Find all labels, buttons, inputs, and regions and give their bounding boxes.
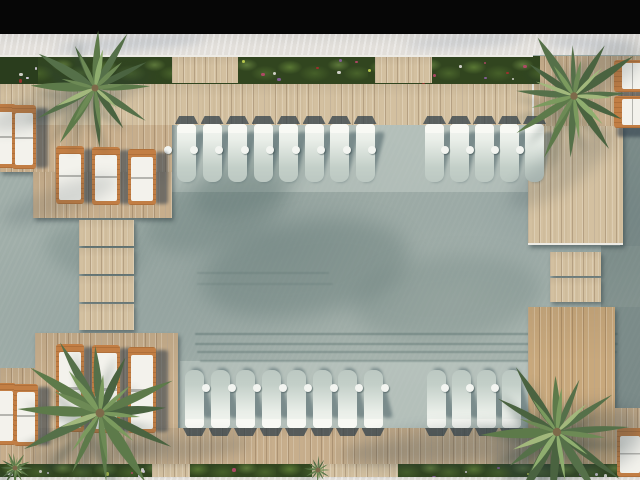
flower-bed-top-flower [339,59,342,62]
sun-lounger-row-bottom-left-lounger-cap [287,419,306,428]
sun-lounger-row-bottom-left-lounger-cap [313,419,332,428]
sun-lounger-row-bottom-right-lounger-cap [427,419,446,428]
sun-lounger-row-bottom-left-lounger-cap [338,419,357,428]
sun-lounger-row-bottom-left-side-table-dot [279,384,287,392]
palm-trunk-center [13,466,18,471]
sun-lounger-row-top-left-lounger-cap [228,124,247,133]
pool-ripple-1 [197,272,329,274]
palm-trunk-center [553,428,561,436]
palm-tree-bottom-right [471,346,640,480]
sun-lounger-row-bottom-left-side-table-dot [228,384,236,392]
flower-bed-top-flower [337,71,340,74]
sun-lounger-row-top-left-side-table-dot [215,146,223,154]
sun-lounger-row-top-left-side-table-dot [190,146,198,154]
sun-lounger-row-bottom-left-lounger-cap [211,419,230,428]
sun-lounger-row-bottom-left-lounger-cap [364,419,383,428]
sun-lounger-row-top-left-lounger-cap [279,124,298,133]
deck-step-left-3 [79,276,134,302]
water-channel-shade-mid [601,246,640,307]
sun-lounger-row-top-right-side-table-dot [441,146,449,154]
sun-lounger-row-bottom-left-side-table-dot [304,384,312,392]
palm-frond [1,468,3,480]
sun-lounger-row-top-left-side-table-dot [241,146,249,154]
deck-step-left-1 [79,220,134,246]
flower-bed-top-flower [277,78,281,82]
sun-lounger-row-top-right-lounger-cap [475,124,494,133]
sun-lounger-row-top-left-lounger-cap [177,124,196,133]
curb-right-band-bottom [528,243,623,245]
sun-lounger-row-top-left-lounger-cap [203,124,222,133]
sun-lounger-row-bottom-left-side-table-dot [381,384,389,392]
flower-bed-top-flower [273,72,276,75]
flower-bed-top-flower [459,65,462,68]
flower-bed-top-flower [242,60,245,63]
sun-lounger-row-top-left-side-table-dot [292,146,300,154]
sun-lounger-row-bottom-left-side-table-dot [330,384,338,392]
pool-ripple-2 [197,283,333,285]
sun-lounger-row-top-left-side-table-dot [343,146,351,154]
palm-tree-top-right [496,18,640,174]
deck-step-right-1 [550,252,601,276]
sun-lounger-row-top-left-side-table-dot [368,146,376,154]
sun-lounger-row-top-left-side-table-dot [266,146,274,154]
pool-aerial-render: Aerial top-down 3D render of a resort sw… [0,0,640,480]
sun-lounger-row-bottom-left-side-table-dot [253,384,261,392]
sun-lounger-row-bottom-left-lounger-cap [236,419,255,428]
flower-bed-bottom-flower [232,468,236,472]
sun-lounger-row-top-right-side-table-dot [466,146,474,154]
deck-patch-top-2 [375,57,432,83]
sun-lounger-row-top-left-lounger-cap [356,124,375,133]
palm-small-bottom-center [289,441,347,480]
palm-trunk-center [316,468,321,473]
palm-trunk-center [96,409,105,418]
sun-lounger-row-top-left-lounger-cap [254,124,273,133]
deck-patch-top-1 [172,57,238,83]
sun-lounger-row-top-left-lounger-cap [305,124,324,133]
sun-lounger-row-top-left-lounger-cap [330,124,349,133]
wood-lounger-upper-platform-3-pad [131,157,153,201]
palm-frond [304,469,306,480]
palm-small-bottom-left [0,436,47,480]
flower-bed-top-flower [433,74,436,77]
palm-trunk-center [92,85,99,92]
sun-lounger-row-bottom-left-side-table-dot [202,384,210,392]
palm-frond [93,85,147,123]
deck-step-right-2 [550,278,601,302]
sun-lounger-row-bottom-right-side-table-dot [441,384,449,392]
deck-step-left-2 [79,248,134,274]
palm-tree-upper-left [21,14,169,162]
palm-trunk-center [570,92,577,99]
flower-bed-top-flower [261,73,264,76]
sun-lounger-row-bottom-left-side-table-dot [355,384,363,392]
sun-lounger-row-top-right-lounger-cap [425,124,444,133]
sun-lounger-row-bottom-left-lounger-cap [262,419,281,428]
sun-lounger-row-top-right-lounger-cap [450,124,469,133]
sun-lounger-row-top-left-side-table-dot [317,146,325,154]
